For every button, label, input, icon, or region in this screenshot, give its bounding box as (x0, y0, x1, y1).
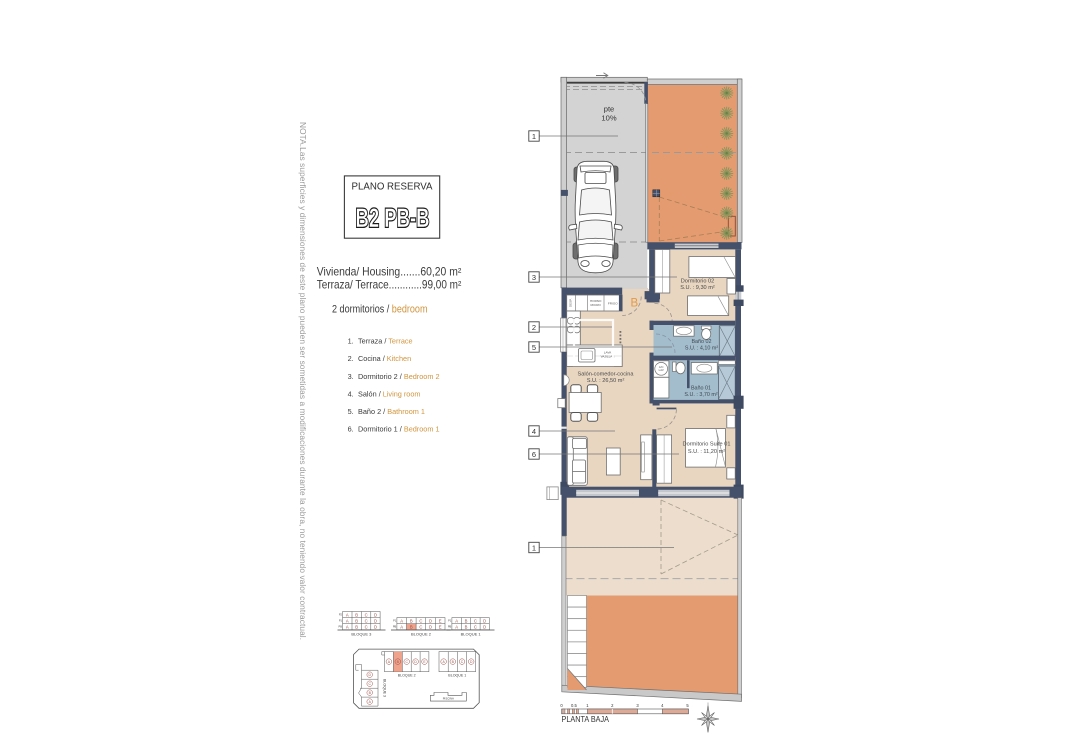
svg-text:BLOQUE 2: BLOQUE 2 (398, 674, 416, 678)
svg-text:1: 1 (532, 543, 536, 552)
svg-text:MICRO: MICRO (591, 303, 602, 307)
svg-text:2.: 2. (348, 354, 354, 363)
svg-text:S.U. : 26,50 m²: S.U. : 26,50 m² (587, 378, 625, 384)
svg-text:D: D (483, 625, 486, 630)
svg-text:A: A (346, 625, 349, 630)
svg-text:pte: pte (604, 105, 615, 114)
svg-text:D: D (374, 613, 377, 618)
svg-text:A: A (346, 619, 349, 624)
svg-text:BLOQUE 2: BLOQUE 2 (411, 632, 432, 637)
svg-text:B: B (355, 625, 358, 630)
svg-text:2: 2 (611, 703, 614, 708)
svg-text:6: 6 (532, 450, 536, 459)
svg-text:S.U. : 9,30 m²: S.U. : 9,30 m² (680, 285, 715, 291)
svg-text:Salón-comedor-cocina: Salón-comedor-cocina (578, 372, 635, 378)
svg-text:A: A (400, 619, 403, 624)
svg-text:BLOQUE 1: BLOQUE 1 (448, 674, 466, 678)
svg-text:PB: PB (339, 625, 343, 629)
svg-text:B: B (410, 619, 413, 624)
svg-text:Salón / Living room: Salón / Living room (358, 389, 420, 398)
svg-text:Baño 2 / Bathroom 1: Baño 2 / Bathroom 1 (358, 407, 425, 416)
svg-text:4: 4 (532, 427, 536, 436)
svg-text:P1: P1 (448, 619, 452, 623)
svg-text:B: B (355, 613, 358, 618)
svg-text:B: B (410, 625, 413, 630)
svg-text:BLOQUE 3: BLOQUE 3 (351, 632, 372, 637)
svg-text:PLANTA BAJA: PLANTA BAJA (562, 714, 610, 724)
svg-text:4: 4 (661, 703, 664, 708)
svg-text:C: C (419, 625, 422, 630)
svg-text:6.: 6. (348, 425, 354, 434)
svg-text:A: A (455, 625, 458, 630)
svg-text:0.5: 0.5 (571, 703, 577, 708)
svg-text:Baño 02: Baño 02 (691, 339, 711, 345)
svg-text:C: C (365, 619, 368, 624)
svg-text:Terraza / Terrace: Terraza / Terrace (358, 337, 413, 346)
svg-text:Vivienda/ Housing.......60,20: Vivienda/ Housing.......60,20 m² (317, 266, 462, 279)
svg-text:5.: 5. (348, 407, 354, 416)
svg-text:BLOQUE 3: BLOQUE 3 (383, 679, 387, 697)
svg-text:D: D (483, 619, 486, 624)
svg-text:B: B (465, 619, 468, 624)
svg-text:PB: PB (448, 625, 452, 629)
svg-text:E: E (439, 625, 442, 630)
svg-text:LAV: LAV (659, 368, 664, 372)
svg-text:3.: 3. (348, 372, 354, 381)
svg-text:Cocina / Kitchen: Cocina / Kitchen (358, 354, 411, 363)
svg-text:C: C (474, 625, 477, 630)
svg-text:E: E (439, 619, 442, 624)
svg-text:1: 1 (586, 703, 589, 708)
svg-text:BLOQUE 1: BLOQUE 1 (461, 632, 482, 637)
svg-text:D: D (429, 619, 432, 624)
svg-text:Dormitorio 2 / Bedroom 2: Dormitorio 2 / Bedroom 2 (358, 372, 440, 381)
svg-text:S.U. : 4,10 m²: S.U. : 4,10 m² (685, 346, 718, 352)
svg-text:Dormitorio 02: Dormitorio 02 (681, 279, 715, 285)
svg-text:P1: P1 (393, 619, 397, 623)
svg-text:D: D (374, 619, 377, 624)
svg-text:2 dormitorios / bedroom: 2 dormitorios / bedroom (332, 304, 428, 316)
svg-text:PLANO RESERVA: PLANO RESERVA (352, 181, 433, 193)
svg-text:C: C (365, 613, 368, 618)
svg-text:Dormitorio 1 / Bedroom 1: Dormitorio 1 / Bedroom 1 (358, 425, 440, 434)
svg-text:A: A (400, 625, 403, 630)
svg-text:B: B (355, 619, 358, 624)
svg-text:Baño 01: Baño 01 (691, 386, 711, 392)
svg-text:0: 0 (560, 703, 563, 708)
svg-text:PB: PB (393, 625, 397, 629)
svg-text:NOTA.Las superficies y dimensi: NOTA.Las superficies y dimensiones de es… (298, 122, 308, 640)
svg-text:4.: 4. (348, 389, 354, 398)
svg-text:D: D (429, 625, 432, 630)
svg-text:3: 3 (532, 273, 536, 282)
svg-text:5: 5 (532, 343, 536, 352)
svg-text:1: 1 (532, 132, 536, 141)
svg-text:C: C (365, 625, 368, 630)
svg-text:5: 5 (686, 703, 689, 708)
svg-text:C: C (474, 619, 477, 624)
svg-text:10%: 10% (601, 114, 616, 123)
svg-text:B: B (465, 625, 468, 630)
svg-text:2: 2 (532, 323, 536, 332)
svg-text:B2 PB-B: B2 PB-B (356, 203, 430, 233)
svg-text:A: A (455, 619, 458, 624)
svg-text:Terraza/ Terrace............99: Terraza/ Terrace............99,00 m² (317, 278, 462, 291)
svg-text:S.U. : 3,70 m²: S.U. : 3,70 m² (684, 392, 717, 398)
svg-text:3: 3 (636, 703, 639, 708)
svg-text:A: A (346, 613, 349, 618)
svg-text:1.: 1. (348, 337, 354, 346)
svg-text:C: C (419, 619, 422, 624)
svg-text:DESP.: DESP. (569, 298, 573, 307)
svg-text:D: D (374, 625, 377, 630)
svg-text:P2: P2 (339, 613, 343, 617)
svg-text:S.U. : 11,20 m²: S.U. : 11,20 m² (688, 449, 725, 455)
svg-text:FRIGO: FRIGO (608, 302, 618, 306)
svg-text:B: B (631, 298, 639, 310)
svg-text:P1: P1 (339, 619, 343, 623)
svg-text:PISCINA: PISCINA (443, 696, 454, 700)
svg-text:Dormitorio Suite 01: Dormitorio Suite 01 (683, 442, 731, 448)
